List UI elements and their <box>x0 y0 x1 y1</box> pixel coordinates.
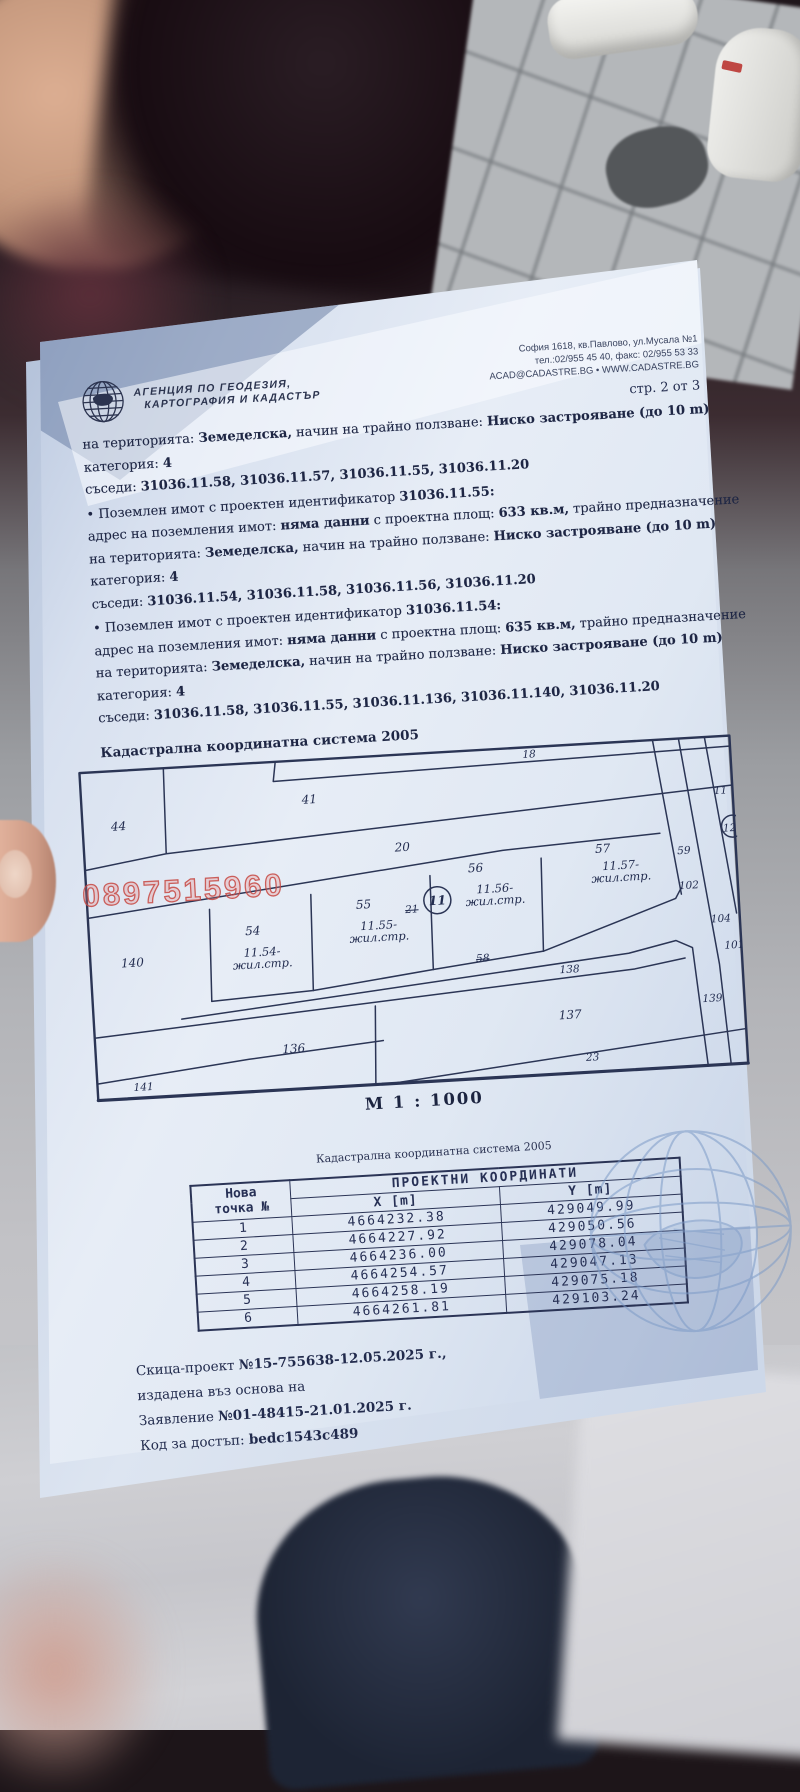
parcel-label-44: 44 <box>111 819 127 834</box>
globe-watermark-icon <box>578 1118 800 1345</box>
cadastral-map: 44 41 18 20 140 54 55 21 11 56 57 59 11 … <box>77 733 750 1105</box>
building-label-1155: 11.55- жил.стр. <box>348 917 409 945</box>
parcel-label-136: 136 <box>282 1041 306 1056</box>
parcel-label-55: 55 <box>355 897 371 912</box>
parcel-label-139: 139 <box>702 991 723 1004</box>
parcel-label-138: 138 <box>559 963 580 976</box>
globe-logo-icon <box>79 377 128 426</box>
parcel-label-18: 18 <box>522 748 536 761</box>
agency-address: София 1618, кв.Павлово, ул.Мусала №1 тел… <box>488 332 700 383</box>
header-right: София 1618, кв.Павлово, ул.Мусала №1 тел… <box>487 330 700 405</box>
parcel-label-23: 23 <box>586 1051 600 1064</box>
parcel-label-141: 141 <box>133 1080 154 1093</box>
parcel-label-12-circled: 12 <box>723 821 737 834</box>
parcel-label-101: 101 <box>724 938 745 951</box>
skin-bottom-left <box>0 1555 160 1785</box>
parcel-label-137: 137 <box>558 1007 582 1022</box>
building-label-1156: 11.56- жил.стр. <box>465 880 526 908</box>
parcel-label-20: 20 <box>394 839 410 854</box>
parcel-label-140: 140 <box>121 955 145 970</box>
parcel-label-57: 57 <box>595 841 611 856</box>
point-column-header: Нова точка № <box>190 1180 291 1222</box>
building-label-1157: 11.57- жил.стр. <box>590 857 651 885</box>
parcel-label-59: 59 <box>677 844 691 857</box>
parcel-label-54: 54 <box>245 923 261 938</box>
cadastre-document: АГЕНЦИЯ ПО ГЕОДЕЗИЯ, КАРТОГРАФИЯ И КАДАС… <box>78 330 760 1458</box>
agency-logo: АГЕНЦИЯ ПО ГЕОДЕЗИЯ, КАРТОГРАФИЯ И КАДАС… <box>79 366 322 426</box>
agency-name: АГЕНЦИЯ ПО ГЕОДЕЗИЯ, КАРТОГРАФИЯ И КАДАС… <box>133 376 321 413</box>
parcel-label-102: 102 <box>679 879 700 892</box>
parcel-label-21-struck: 21 <box>405 903 419 916</box>
map-lines <box>77 733 750 1105</box>
parcel-label-11-circled: 11 <box>428 892 446 908</box>
parcel-label-11-edge: 11 <box>713 784 727 797</box>
thumbnail <box>0 850 32 898</box>
parcel-label-41: 41 <box>301 791 317 806</box>
parcel-label-56: 56 <box>467 860 483 875</box>
building-label-1154: 11.54- жил.стр. <box>232 944 293 972</box>
parcel-label-58-struck: 58 <box>476 952 490 965</box>
document-body: на територията: Земеделска, начин на тра… <box>82 399 718 731</box>
parcel-label-104: 104 <box>711 912 732 925</box>
